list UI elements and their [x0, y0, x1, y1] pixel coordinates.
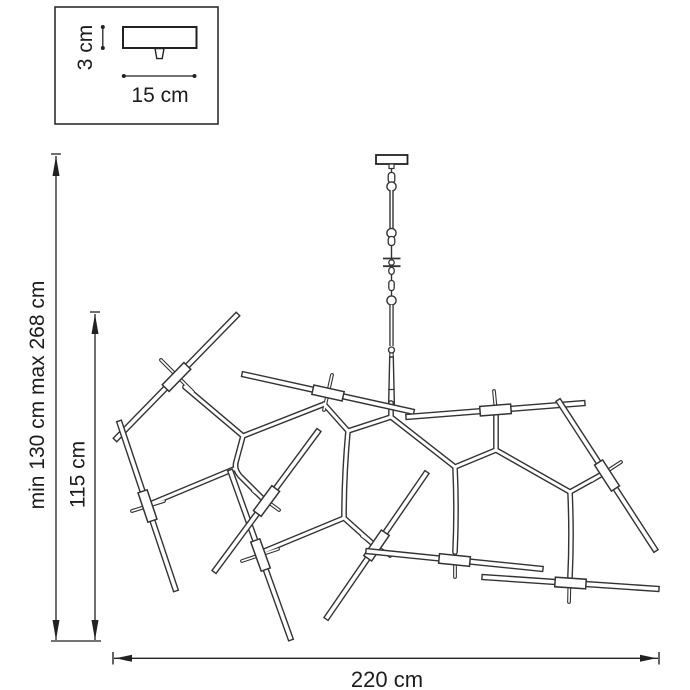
svg-text:220 cm: 220 cm: [351, 667, 423, 690]
svg-text:min 130 cm max 268 cm: min 130 cm max 268 cm: [26, 281, 49, 510]
svg-text:3 cm: 3 cm: [74, 25, 97, 71]
svg-text:115 cm: 115 cm: [67, 441, 90, 508]
svg-text:15 cm: 15 cm: [131, 84, 188, 107]
